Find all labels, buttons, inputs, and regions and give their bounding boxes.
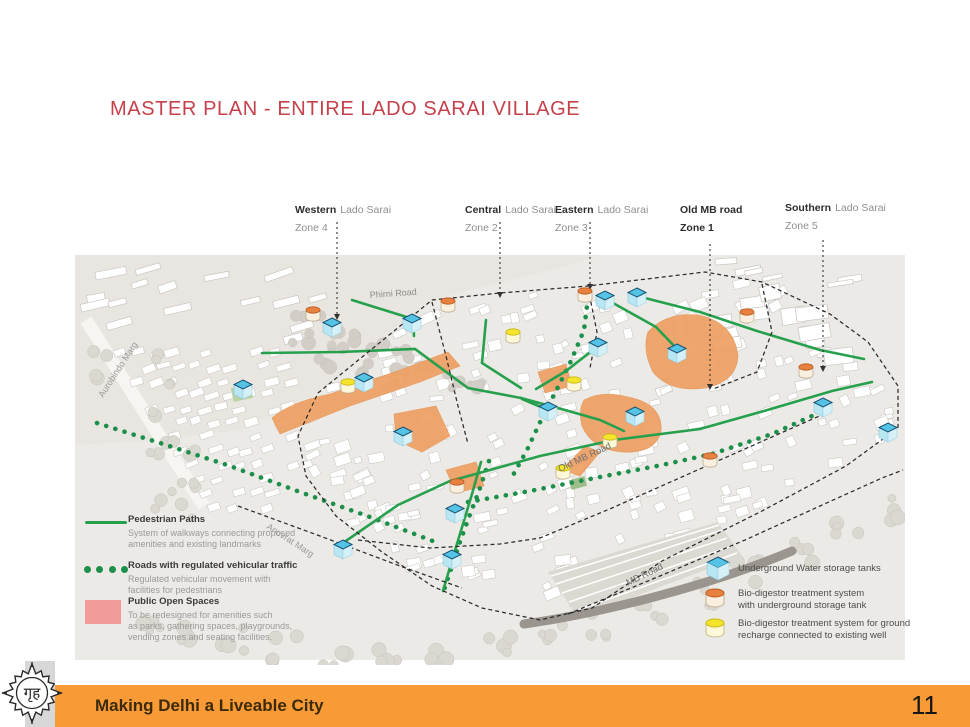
water-tank-marker bbox=[589, 338, 607, 357]
logo-text: गृह bbox=[24, 684, 41, 703]
bio-digestor-orange-marker bbox=[799, 364, 813, 378]
water-tank-marker bbox=[234, 380, 252, 399]
legend-swatch-dots bbox=[84, 566, 128, 573]
bio-digestor-orange-marker bbox=[578, 288, 592, 302]
bio-digestor-yellow-marker bbox=[341, 379, 355, 393]
water-tank-marker bbox=[446, 504, 464, 523]
bio-digestor-yellow-marker bbox=[567, 377, 581, 391]
water-tank-marker bbox=[879, 423, 897, 442]
legend-swatch-open-space bbox=[85, 600, 121, 624]
water-tank-marker bbox=[334, 540, 352, 559]
footer-bar: Making Delhi a Liveable City 11 bbox=[55, 685, 970, 727]
footer-title: Making Delhi a Liveable City bbox=[95, 696, 324, 716]
bio-digestor-yellow-icon bbox=[705, 617, 731, 643]
legend-item-bio-orange: Bio-digestor treatment system with under… bbox=[738, 588, 866, 613]
bio-digestor-orange-marker bbox=[740, 309, 754, 323]
page-title: MASTER PLAN - ENTIRE LADO SARAI VILLAGE bbox=[110, 98, 580, 121]
bio-digestor-yellow-marker bbox=[506, 329, 520, 343]
water-tank-icon bbox=[704, 556, 732, 584]
bio-digestor-orange-marker bbox=[306, 307, 320, 321]
page-number: 11 bbox=[911, 690, 938, 721]
water-tank-marker bbox=[814, 398, 832, 417]
water-tank-marker bbox=[626, 407, 644, 426]
water-tank-marker bbox=[596, 291, 614, 310]
bio-digestor-orange-icon bbox=[705, 587, 731, 613]
water-tank-marker bbox=[539, 402, 557, 421]
bio-digestor-orange-marker bbox=[703, 453, 717, 467]
water-tank-marker bbox=[403, 314, 421, 333]
organization-logo-icon: गृह bbox=[1, 660, 63, 726]
legend-item-pedestrian-paths: Pedestrian Paths System of walkways conn… bbox=[128, 514, 295, 550]
water-tank-marker bbox=[628, 288, 646, 307]
legend-item-bio-yellow: Bio-digestor treatment system for ground… bbox=[738, 618, 910, 643]
water-tank-marker bbox=[668, 344, 686, 363]
legend-item-regulated-roads: Roads with regulated vehicular traffic R… bbox=[128, 560, 297, 596]
water-tank-marker bbox=[355, 373, 373, 392]
slide: MASTER PLAN - ENTIRE LADO SARAI VILLAGE … bbox=[0, 0, 970, 727]
water-tank-marker bbox=[394, 427, 412, 446]
water-tank-marker bbox=[323, 318, 341, 337]
water-tank-marker bbox=[443, 550, 461, 569]
bio-digestor-orange-marker bbox=[450, 479, 464, 493]
legend-item-water-tanks: Underground Water storage tanks bbox=[738, 563, 881, 575]
bio-digestor-orange-marker bbox=[441, 298, 455, 312]
legend-swatch-line bbox=[85, 521, 127, 524]
legend-item-open-spaces: Public Open Spaces To be redesigned for … bbox=[128, 596, 292, 644]
